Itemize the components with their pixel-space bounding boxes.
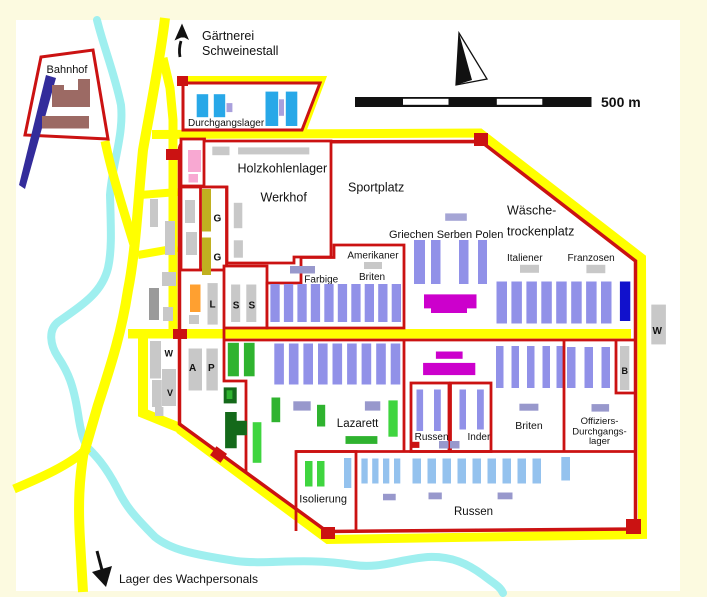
svg-text:Schweinestall: Schweinestall bbox=[202, 44, 278, 58]
svg-text:Werkhof: Werkhof bbox=[261, 191, 308, 205]
svg-text:B: B bbox=[622, 366, 629, 376]
svg-text:trockenplatz: trockenplatz bbox=[507, 225, 574, 239]
svg-text:Holzkohlenlager: Holzkohlenlager bbox=[238, 162, 328, 176]
svg-text:lager: lager bbox=[589, 436, 610, 447]
svg-text:Briten: Briten bbox=[515, 420, 543, 432]
svg-text:G: G bbox=[214, 214, 222, 225]
svg-text:W: W bbox=[165, 349, 174, 359]
svg-text:S: S bbox=[249, 301, 256, 312]
svg-text:G: G bbox=[214, 253, 222, 264]
svg-text:Gärtnerei: Gärtnerei bbox=[202, 29, 254, 43]
svg-text:L: L bbox=[210, 300, 216, 311]
svg-text:Offiziers-: Offiziers- bbox=[581, 416, 619, 427]
svg-text:Briten: Briten bbox=[359, 272, 385, 283]
svg-text:Sportplatz: Sportplatz bbox=[348, 181, 404, 195]
svg-text:S: S bbox=[233, 301, 240, 312]
svg-text:Griechen Serben Polen: Griechen Serben Polen bbox=[389, 229, 503, 241]
svg-text:Lager des Wachpersonals: Lager des Wachpersonals bbox=[119, 572, 258, 586]
svg-text:Russen: Russen bbox=[454, 506, 493, 518]
svg-text:P: P bbox=[208, 363, 215, 374]
svg-text:Bahnhof: Bahnhof bbox=[47, 64, 89, 76]
svg-text:Farbige: Farbige bbox=[304, 275, 338, 286]
svg-text:V: V bbox=[167, 388, 173, 398]
svg-text:Lazarett: Lazarett bbox=[337, 418, 379, 430]
svg-text:Isolierung: Isolierung bbox=[299, 494, 347, 506]
svg-text:500 m: 500 m bbox=[601, 94, 641, 110]
svg-text:Franzosen: Franzosen bbox=[568, 253, 615, 264]
svg-text:Inder: Inder bbox=[468, 432, 491, 443]
svg-text:W: W bbox=[653, 326, 663, 337]
svg-text:Amerikaner: Amerikaner bbox=[347, 251, 399, 262]
svg-text:Durchgangslager: Durchgangslager bbox=[188, 118, 265, 129]
svg-text:A: A bbox=[189, 363, 196, 374]
svg-text:Italiener: Italiener bbox=[507, 253, 543, 264]
svg-text:Wäsche-: Wäsche- bbox=[507, 204, 556, 218]
